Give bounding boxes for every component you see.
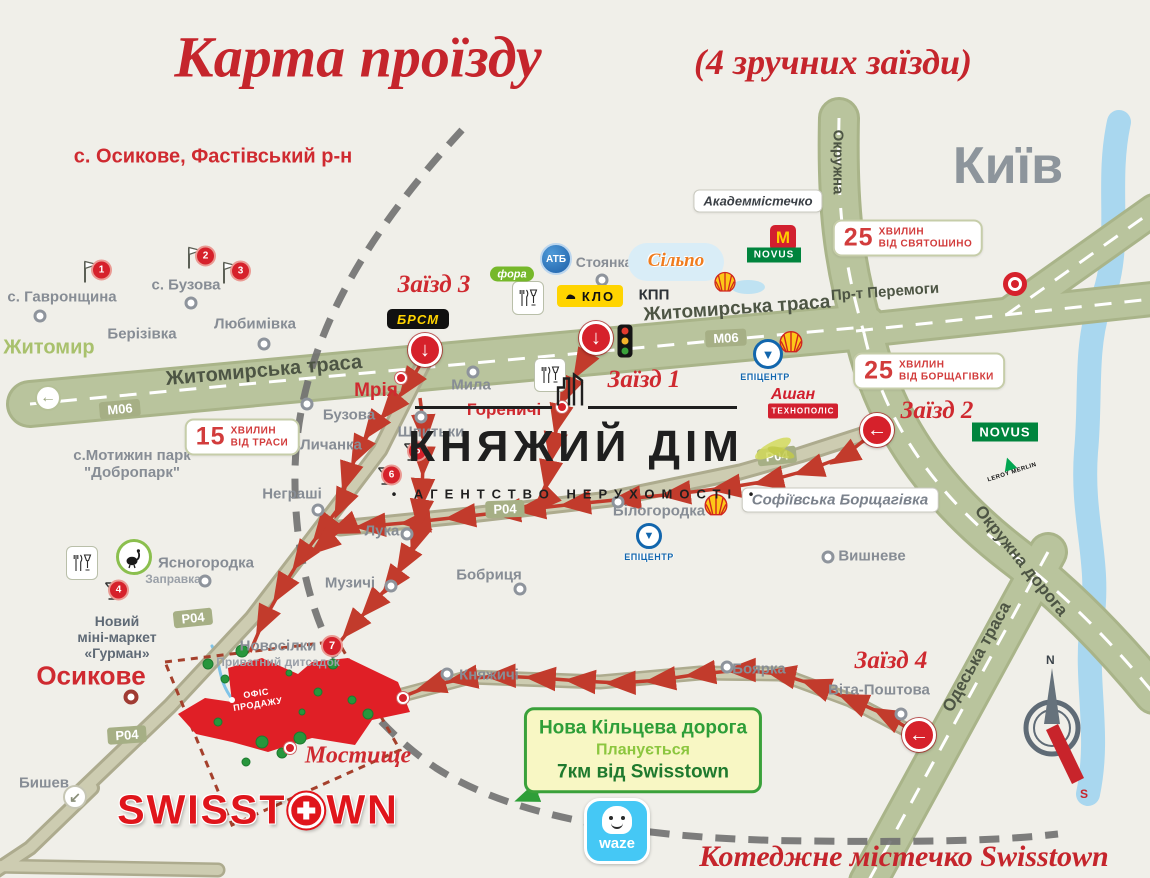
watermark-rule-right bbox=[588, 406, 737, 409]
entrance-2-marker-left-arrow-icon: ← bbox=[860, 413, 894, 447]
gurman-line1: Новий bbox=[95, 613, 139, 629]
village-mriya: Мрія bbox=[354, 380, 398, 402]
swisstown-logo: SWISST WN bbox=[117, 787, 399, 834]
page-title: Карта проїзду bbox=[174, 24, 541, 91]
village-dot bbox=[258, 338, 271, 351]
golf-flag-icon: 3 bbox=[219, 260, 241, 291]
village-dot bbox=[312, 504, 325, 517]
badge-25b-line1: хвилин bbox=[899, 359, 994, 371]
ashan-store-logo: Ашан bbox=[771, 386, 815, 404]
road-badge-m06-west: М06 bbox=[99, 399, 142, 420]
village-novosilky: Новосілки bbox=[240, 638, 317, 655]
motyzhyn-line2: "Добропарк" bbox=[84, 464, 180, 481]
footer-cottage-town-label: Котеджне містечко Swisstown bbox=[699, 840, 1108, 874]
epicentr-arrow-icon: ▼ bbox=[636, 523, 662, 549]
village-vita-poshtova: Віта-Поштова bbox=[828, 682, 930, 699]
route-point-dot bbox=[284, 742, 296, 754]
entrance-3-label: Заїзд 3 bbox=[398, 271, 471, 299]
swisstown-logo-part2: WN bbox=[326, 787, 398, 834]
village-lychanka: Личанка bbox=[300, 437, 362, 454]
village-boiarka: Боярка bbox=[732, 661, 786, 678]
ring-road-status: Планується bbox=[539, 740, 747, 760]
novus-store-logo: NOVUS bbox=[972, 423, 1038, 442]
entrance-1-label: Заїзд 1 bbox=[608, 366, 681, 394]
village-dot bbox=[301, 398, 314, 411]
village-dot bbox=[401, 528, 414, 541]
page-title-suffix: (4 зручних заїзди) bbox=[694, 41, 972, 83]
brsm-gas-logo: БРСМ bbox=[387, 309, 449, 329]
agency-watermark-tagline: • АГЕНТСТВО НЕРУХОМОСТІ • bbox=[392, 487, 761, 502]
watermark-building-icon bbox=[553, 366, 587, 413]
silpo-store-logo: Сільпо bbox=[648, 250, 704, 272]
watermark-leaf-decoration bbox=[753, 438, 799, 464]
village-dot bbox=[721, 661, 734, 674]
village-luka: Лука bbox=[365, 523, 400, 540]
driving-map: N S Карта проїзду (4 зручних заїзди) с. … bbox=[0, 0, 1150, 878]
badge-25-min-sviatoshyno: 25 хвилинвід святошино bbox=[833, 220, 983, 257]
label-kpp: КПП bbox=[639, 287, 670, 304]
osykove-dot bbox=[124, 690, 139, 705]
label-akademmistechko: Академмістечко bbox=[693, 190, 822, 213]
swiss-cross-icon bbox=[288, 792, 324, 828]
waze-app-icon: waze bbox=[584, 798, 650, 864]
restaurant-icon bbox=[512, 281, 544, 315]
village-berizivka: Берізівка bbox=[107, 326, 176, 343]
road-badge-m06-east: М06 bbox=[705, 328, 747, 347]
village-dot bbox=[514, 583, 527, 596]
technopolis-store-logo: ТЕХНОПОЛІС bbox=[768, 404, 838, 419]
epicentr-logo-text: ЕПІЦЕНТР bbox=[624, 552, 674, 562]
entrance-2-label: Заїзд 2 bbox=[901, 397, 974, 425]
village-bobrytsia: Бобриця bbox=[456, 567, 522, 584]
entrance-4-label: Заїзд 4 bbox=[855, 647, 928, 675]
badge-25-min-borshchahivka: 25 хвилинвід борщагівки bbox=[853, 353, 1005, 390]
village-osykove: Осикове bbox=[36, 661, 145, 692]
label-stoianka: Стоянка bbox=[576, 254, 633, 270]
klo-gas-logo: КЛО bbox=[557, 285, 623, 307]
village-dot bbox=[895, 708, 908, 721]
village-bilohorodka: Білогородка bbox=[613, 503, 705, 520]
badge-25a-line2: від святошино bbox=[879, 238, 973, 250]
poi-marker-2: 2 bbox=[195, 246, 216, 267]
badge-25b-number: 25 bbox=[864, 357, 894, 386]
label-gurman-minimarket: Новий міні-маркет «Гурман» bbox=[77, 613, 156, 661]
label-sofiivska-borshchahivka: Софіївська Борщагівка bbox=[742, 488, 939, 513]
epicentr-arrow-icon: ▼ bbox=[753, 339, 783, 369]
west-direction-arrow-icon: ← bbox=[35, 385, 61, 411]
village-mostyshche: Мостище bbox=[305, 743, 411, 770]
restaurant-icon bbox=[66, 546, 98, 580]
sviatoshyn-point-icon bbox=[1003, 272, 1027, 296]
village-dot bbox=[185, 297, 198, 310]
village-kniazhychi: Княжичі bbox=[459, 667, 519, 684]
village-vyshneve: Вишневе bbox=[838, 548, 905, 565]
road-label-okruzhna-top: Окружна bbox=[830, 130, 847, 195]
village-dot bbox=[199, 575, 212, 588]
map-subtitle: с. Осикове, Фастівський р-н bbox=[74, 146, 352, 169]
klo-text: КЛО bbox=[582, 289, 615, 304]
compass-n-label: N bbox=[1046, 653, 1055, 667]
village-buzova: Бузова bbox=[323, 407, 375, 424]
poi-marker-6: 6 bbox=[381, 465, 402, 486]
village-liubymivka: Любимівка bbox=[214, 316, 296, 333]
road-badge-p04-south: Р04 bbox=[107, 725, 147, 745]
village-havronshchyna: с. Гавронщина bbox=[7, 289, 116, 306]
village-nehrashi: Неграші bbox=[262, 486, 322, 503]
golf-flag-icon: 1 bbox=[80, 259, 102, 290]
village-yasnohorodka: Ясногородка bbox=[158, 555, 254, 572]
label-zapravka: Заправка bbox=[145, 572, 201, 586]
golf-flag-icon: 2 bbox=[184, 245, 206, 276]
entrance-3-marker-down-arrow-icon: ↓ bbox=[408, 333, 442, 367]
route-point-dot bbox=[395, 372, 407, 384]
waze-wordmark: waze bbox=[599, 835, 635, 852]
atb-store-logo: АТБ bbox=[540, 243, 572, 275]
direction-label-zhytomyr: Житомир bbox=[3, 337, 94, 360]
village-muzychi: Музичі bbox=[325, 575, 375, 592]
epicentr-logo-text: ЕПІЦЕНТР bbox=[740, 372, 790, 382]
village-dot bbox=[441, 668, 454, 681]
village-dot bbox=[385, 580, 398, 593]
village-byshev: Бишев bbox=[19, 775, 69, 792]
poi-marker-3: 3 bbox=[230, 261, 251, 282]
traffic-light-icon bbox=[618, 325, 633, 358]
new-ring-road-box: Нова Кільцева дорога Планується 7км від … bbox=[524, 707, 762, 793]
waze-ghost-icon bbox=[602, 806, 632, 834]
village-dot bbox=[822, 551, 835, 564]
badge-25a-line1: хвилин bbox=[879, 226, 973, 238]
ring-road-distance: 7км від Swisstown bbox=[539, 760, 747, 784]
cocktail-glass-icon: 6 bbox=[377, 467, 393, 492]
agency-watermark-name: КНЯЖИЙ ДІМ bbox=[408, 422, 744, 472]
village-horenychi: Гореничі bbox=[467, 400, 541, 420]
village-myla: Мила bbox=[451, 377, 491, 394]
fora-store-logo: фора bbox=[490, 267, 534, 282]
watermark-rule-left bbox=[415, 406, 552, 409]
village-dot bbox=[34, 310, 47, 323]
klo-duck-icon bbox=[565, 291, 577, 301]
label-dytsadok: Приватний дитсадок bbox=[216, 655, 340, 669]
poi-marker-7: 7 bbox=[321, 635, 343, 657]
gurman-line2: міні-маркет bbox=[77, 629, 156, 645]
compass-s-label: S bbox=[1080, 787, 1088, 801]
village-buzova-s: с. Бузова bbox=[151, 277, 220, 294]
ostrich-farm-icon bbox=[116, 539, 152, 575]
badge-15-number: 15 bbox=[196, 423, 226, 452]
novus-store-logo: NOVUS bbox=[747, 248, 801, 263]
label-motyzhyn-park: с.Мотижин парк "Добропарк" bbox=[73, 447, 191, 482]
cocktail-glass-icon: 4 bbox=[104, 582, 120, 607]
ring-road-title: Нова Кільцева дорога bbox=[539, 716, 747, 740]
badge-15-line1: хвилин bbox=[231, 425, 289, 437]
entrance-1-marker-down-arrow-icon: ↓ bbox=[579, 321, 613, 355]
city-label-kyiv: Київ bbox=[953, 136, 1063, 196]
entrance-4-marker-left-arrow-icon: ← bbox=[902, 718, 936, 752]
motyzhyn-line1: с.Мотижин парк bbox=[73, 447, 191, 464]
poi-marker-4: 4 bbox=[108, 580, 129, 601]
badge-25a-number: 25 bbox=[844, 224, 874, 253]
poi-marker-1: 1 bbox=[91, 260, 112, 281]
route-point-dot bbox=[397, 692, 409, 704]
road-badge-p04-center: Р04 bbox=[485, 500, 525, 518]
badge-25b-line2: від борщагівки bbox=[899, 371, 994, 383]
badge-15-min: 15 хвилинвід траси bbox=[185, 419, 300, 456]
swisstown-logo-part1: SWISST bbox=[117, 787, 286, 834]
village-dot bbox=[467, 366, 480, 379]
badge-15-line2: від траси bbox=[231, 437, 289, 449]
gurman-line3: «Гурман» bbox=[84, 645, 149, 661]
compass-north-needle bbox=[1044, 668, 1060, 724]
shell-gas-icon bbox=[712, 270, 738, 301]
